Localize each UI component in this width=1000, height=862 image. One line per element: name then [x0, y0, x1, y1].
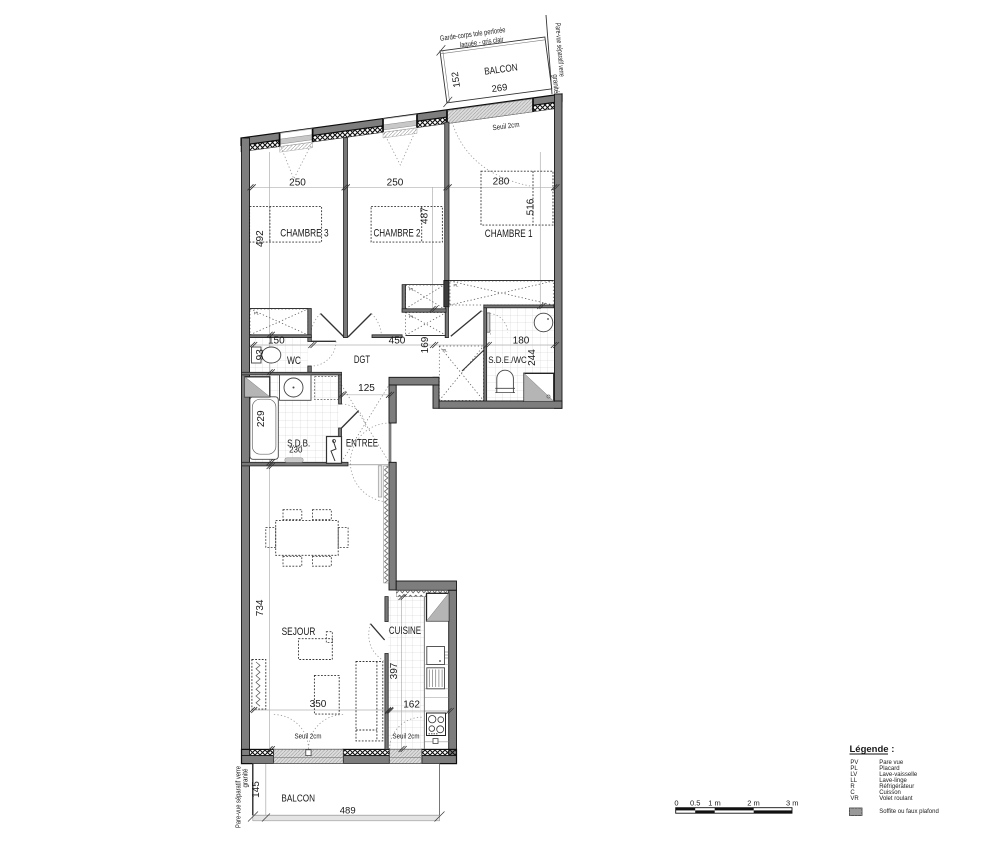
- svg-text:230: 230: [289, 446, 303, 455]
- svg-text:SEJOUR: SEJOUR: [282, 626, 316, 638]
- svg-text:Légende :: Légende :: [850, 744, 895, 755]
- svg-text:PL: PL: [409, 287, 415, 292]
- svg-text:250: 250: [387, 178, 404, 189]
- svg-text:PL: PL: [454, 283, 460, 288]
- svg-text:152: 152: [450, 71, 463, 88]
- svg-text:BALCON: BALCON: [281, 793, 315, 804]
- svg-text:granité: granité: [241, 769, 250, 788]
- svg-text:250: 250: [289, 178, 306, 189]
- svg-text:516: 516: [526, 198, 537, 215]
- svg-text:229: 229: [256, 410, 267, 427]
- svg-text:93: 93: [255, 349, 266, 361]
- svg-text:CUISINE: CUISINE: [389, 625, 421, 637]
- svg-text:489: 489: [340, 806, 356, 817]
- svg-text:2 m: 2 m: [747, 798, 760, 807]
- svg-text:450: 450: [389, 336, 406, 347]
- svg-text:0: 0: [674, 798, 678, 807]
- svg-text:Volet roulant: Volet roulant: [879, 796, 913, 802]
- svg-text:Seuil 2cm: Seuil 2cm: [393, 732, 420, 741]
- svg-text:162: 162: [403, 700, 420, 711]
- svg-text:CHAMBRE 1: CHAMBRE 1: [485, 228, 533, 240]
- svg-text:0.5: 0.5: [690, 798, 700, 807]
- svg-text:CHAMBRE 2: CHAMBRE 2: [373, 227, 420, 239]
- svg-text:180: 180: [513, 336, 530, 347]
- svg-text:VR: VR: [850, 796, 859, 802]
- svg-text:734: 734: [255, 599, 266, 616]
- svg-text:350: 350: [310, 699, 327, 710]
- svg-text:487: 487: [420, 207, 431, 224]
- svg-text:PL: PL: [409, 314, 415, 319]
- svg-text:244: 244: [527, 349, 538, 366]
- svg-text:PL: PL: [254, 311, 260, 316]
- svg-text:269: 269: [491, 82, 508, 95]
- svg-text:granité: granité: [551, 74, 561, 94]
- svg-text:S.D.E./WC: S.D.E./WC: [488, 355, 527, 365]
- svg-text:Soffite ou faux plafond: Soffite ou faux plafond: [879, 809, 939, 815]
- svg-text:169: 169: [420, 336, 431, 353]
- svg-text:Seuil 2cm: Seuil 2cm: [295, 732, 322, 741]
- svg-text:150: 150: [268, 336, 285, 347]
- svg-text:PL: PL: [443, 348, 449, 353]
- svg-text:CHAMBRE 3: CHAMBRE 3: [280, 227, 328, 239]
- svg-text:492: 492: [255, 230, 266, 247]
- svg-text:3 m: 3 m: [786, 798, 799, 807]
- svg-text:ENTREE: ENTREE: [346, 437, 378, 449]
- svg-text:145: 145: [251, 781, 262, 798]
- svg-text:WC: WC: [287, 355, 301, 367]
- svg-text:280: 280: [493, 177, 510, 188]
- svg-text:125: 125: [358, 383, 375, 394]
- svg-text:397: 397: [389, 662, 400, 679]
- svg-text:DGT: DGT: [354, 354, 370, 366]
- svg-text:1 m: 1 m: [708, 798, 721, 807]
